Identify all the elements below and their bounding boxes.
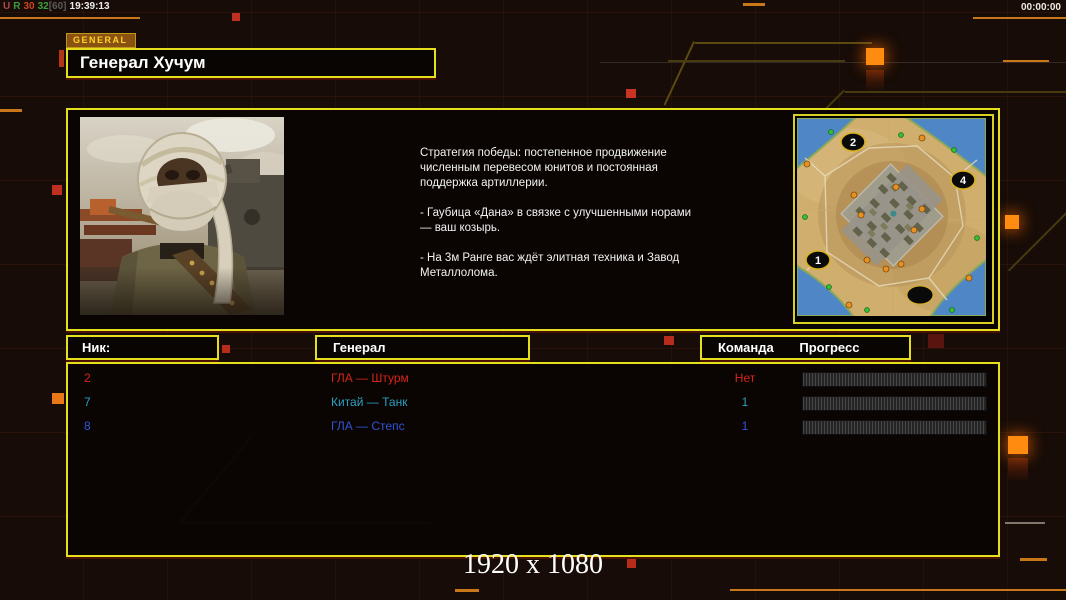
player-general: ГЛА — Степс (331, 419, 405, 433)
player-row[interactable]: 7 Китай — Танк 1 (68, 391, 998, 415)
general-title-box: Генерал Хучум (66, 48, 436, 78)
player-nick: 8 (84, 419, 91, 433)
circuit-node (232, 13, 240, 21)
briefing-paragraph: - На 3м Ранге вас ждёт элитная техника и… (420, 251, 696, 281)
trace-line (664, 41, 695, 105)
stats-segment: 19:39:13 (70, 1, 110, 12)
circuit-node (52, 185, 62, 195)
stats-segment: [60] (49, 1, 67, 12)
player-progress-bar (802, 420, 987, 435)
general-portrait (80, 117, 284, 315)
trace-line (730, 589, 1066, 591)
stats-segment: U (3, 1, 10, 12)
resolution-label: 1920 x 1080 (0, 549, 1066, 581)
player-progress-bar (802, 396, 987, 411)
trace-line (455, 589, 479, 592)
player-rows: 2 ГЛА — Штурм Нет 7 Китай — Танк 1 8 ГЛА… (68, 367, 998, 439)
circuit-node (664, 336, 674, 345)
column-header-progress-label: Прогресс (799, 340, 859, 355)
loading-screen: UR3032[60]19:39:13 00:00:00 GENERAL Гене… (0, 0, 1066, 600)
circuit-node (59, 50, 64, 67)
player-row[interactable]: 2 ГЛА — Штурм Нет (68, 367, 998, 391)
trace-line (973, 17, 1066, 19)
player-nick: 2 (84, 371, 91, 385)
column-header-general-label: Генерал (333, 340, 385, 355)
circuit-node (626, 89, 636, 98)
player-progress-bar (802, 372, 987, 387)
column-header-nick-label: Ник: (82, 340, 110, 355)
start-position-marker (907, 286, 933, 304)
match-timer: 00:00:00 (1021, 2, 1061, 13)
circuit-node (866, 48, 884, 65)
start-position-number: 2 (850, 137, 856, 149)
trace-line (0, 17, 140, 19)
circuit-node (928, 334, 944, 348)
column-header-team-label: Команда (718, 340, 774, 355)
circuit-node (1008, 436, 1028, 454)
briefing-panel: Стратегия победы: постепенное продвижени… (66, 108, 1000, 331)
player-team: Нет (715, 371, 775, 385)
general-tab-label: GENERAL (66, 33, 136, 48)
circuit-node (222, 345, 230, 353)
map-preview: 241 (793, 114, 994, 324)
briefing-paragraph: Стратегия победы: постепенное продвижени… (420, 146, 696, 191)
player-nick: 7 (84, 395, 91, 409)
stats-segment: 30 (23, 1, 34, 12)
trace-line (668, 60, 845, 62)
circuit-node-reflection (1008, 458, 1028, 482)
briefing-paragraph: - Гаубица «Дана» в связке с улучшенными … (420, 206, 696, 236)
general-name: Генерал Хучум (68, 50, 434, 73)
column-header-nick: Ник: (66, 335, 219, 360)
trace-line (0, 109, 22, 112)
column-header-team-progress: Команда Прогресс (700, 335, 911, 360)
strategy-briefing: Стратегия победы: постепенное продвижени… (420, 146, 696, 296)
player-list-panel: 2 ГЛА — Штурм Нет 7 Китай — Танк 1 8 ГЛА… (66, 362, 1000, 557)
player-general: Китай — Танк (331, 395, 407, 409)
player-general: ГЛА — Штурм (331, 371, 409, 385)
player-team: 1 (715, 395, 775, 409)
trace-line (695, 42, 872, 44)
stats-overlay: UR3032[60]19:39:13 (3, 1, 113, 12)
column-header-general: Генерал (315, 335, 530, 360)
circuit-node (1005, 215, 1019, 229)
trace-line (1005, 522, 1045, 524)
stats-segment: R (13, 1, 20, 12)
player-team: 1 (715, 419, 775, 433)
circuit-node (52, 393, 64, 404)
start-position-number: 4 (960, 175, 967, 187)
start-position-number: 1 (815, 255, 821, 267)
circuit-node-reflection (866, 70, 884, 92)
player-row[interactable]: 8 ГЛА — Степс 1 (68, 415, 998, 439)
trace-line (743, 3, 765, 6)
trace-line (600, 62, 1066, 63)
stats-segment: 32 (38, 1, 49, 12)
